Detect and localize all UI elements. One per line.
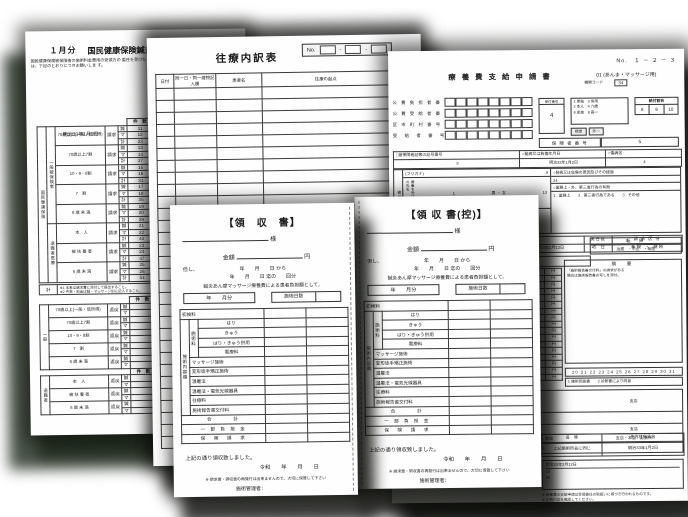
- payer-name-line: 様: [367, 225, 527, 236]
- visit-breakdown-title: 往療内訳表: [147, 49, 347, 67]
- code-row-label: 区 市 町 村 番 号: [393, 121, 445, 127]
- row-label: 被 扶 養 者: [57, 242, 107, 262]
- empty-cell: [156, 112, 174, 124]
- code-cell: [489, 108, 500, 117]
- fee-value: [449, 386, 491, 396]
- fee-value: [490, 319, 532, 329]
- branch-word: 支店: [585, 397, 682, 404]
- table-cell: [174, 88, 216, 101]
- fee-value: [306, 336, 348, 346]
- org-code-label: 機関コード: [584, 80, 603, 85]
- code-cell: [511, 119, 522, 128]
- table-cell: [175, 124, 217, 137]
- ratio-value: 8: [636, 105, 650, 114]
- empty-cell: [157, 184, 175, 196]
- row-label: 70歳以上(一般・低所得): [55, 125, 105, 145]
- code-row-label: 受 給 者 番 号: [393, 132, 445, 138]
- mode-label: 返戻: [109, 388, 122, 401]
- row-label: 6 歳 未 満: [57, 262, 107, 282]
- perforation-line: [359, 201, 363, 485]
- fee-value: [307, 355, 349, 365]
- empty-cell: [157, 148, 175, 160]
- amount-underline: [236, 257, 302, 259]
- fee-value: [448, 329, 490, 339]
- reissue-note: ※ 請求書・領収書の再発行は出来ませんので、大切に保管して下さい: [178, 475, 354, 483]
- mode-label: 返戻: [108, 316, 121, 329]
- record-value: 9: [393, 159, 519, 169]
- table-cell: [175, 148, 217, 161]
- name-underline: [182, 240, 268, 242]
- mode-label: 請求: [106, 223, 119, 243]
- row-label: 6 歳 未 満: [50, 401, 109, 415]
- table-cell: [174, 100, 216, 113]
- code-cell: [489, 119, 500, 128]
- proviso-block: 但し、 年 月 日 から 年 月 日 迄の 回分: [365, 257, 529, 274]
- amount-line: 金額 円: [407, 244, 494, 254]
- empty-cell: [156, 100, 174, 112]
- era-date-line: 令和 年 月 日: [443, 454, 502, 463]
- code-cell: [500, 108, 511, 117]
- month-box: 年 月分: [183, 292, 255, 304]
- fee-value: [307, 365, 349, 375]
- fee-value: [308, 422, 350, 432]
- fee-value: [264, 337, 306, 347]
- code-cell: [500, 119, 511, 128]
- row-label: 6 歳 未 満: [49, 355, 108, 369]
- payer-name-line: 様: [182, 233, 342, 244]
- no-dash: -: [365, 46, 367, 52]
- fee-value: [308, 432, 350, 442]
- fee-value: [449, 425, 491, 435]
- fee-value: [265, 356, 307, 366]
- cause-header-text: ○発病又は負傷の原因及びその経過: [553, 169, 614, 175]
- application-foot-notes: ※ 療養費の支給申請は受領委任の取扱いに基づき行われるものです。 ※ 記載内容を…: [542, 492, 684, 504]
- kokuho-intro-text: 国民健康保険被保険者の施術料金費用の受領方の 委任を受けたるのは、下記のとおりに…: [31, 57, 155, 69]
- consent-dates-row: 20 21 22 23 24 25 26 27 28 29 30 31: [565, 367, 683, 377]
- code-cell: [511, 130, 522, 139]
- mode-label: 請求: [105, 145, 118, 165]
- relation-value: 13: [543, 190, 548, 195]
- memo-box: 摘 要 「施術報告書交付料」の請求がある 場合は施術報告書の写しを添付。: [564, 259, 683, 364]
- fee-value: [448, 310, 490, 320]
- empty-cell: [157, 160, 175, 172]
- document-stack-background: １月分 国民健康保険鍼灸マッサージ療養費請求総括票 国民健康保険被保険者の施術料…: [0, 0, 688, 517]
- column-header: 日付: [156, 74, 174, 88]
- fee-value: [306, 346, 348, 356]
- payee-value: 明治33年1月2日: [602, 441, 684, 456]
- fee-value: [265, 385, 307, 395]
- receipt-number-value: 4: [540, 105, 564, 119]
- fee-value: [265, 365, 307, 375]
- receipt-sheet: 【領 収 書】 様 金額 円 但し、 年 月 日 から 年 月 日 迄の 回分 …: [170, 203, 358, 498]
- fee-value: [449, 406, 491, 416]
- treatment-days-box: 施術日数: [271, 291, 341, 303]
- fee-value: [264, 318, 306, 328]
- payee-table: 名 称 先方住所氏名 上記施術所名に同じ 明治33年1月2日: [541, 433, 684, 457]
- table-cell: [216, 87, 262, 100]
- code-cell: [521, 97, 532, 106]
- receipt-title: 【領 収 書】: [170, 213, 354, 231]
- code-cell: [445, 120, 456, 129]
- row-label: 被 扶 養 者: [50, 388, 109, 402]
- yen-label: 円: [304, 254, 310, 260]
- code-cell: [500, 130, 511, 139]
- insurer-number-label: 保 険 者 番 号: [539, 137, 601, 148]
- manager-signature-label: 施術管理者：: [236, 485, 266, 492]
- row-label: 6 歳 未 満: [56, 203, 106, 223]
- fee-value: [490, 328, 532, 338]
- outcome-box: 転 帰 治癒 ・中止 ・転医: [590, 237, 682, 255]
- fee-value: [449, 358, 491, 368]
- code-cell: [456, 131, 467, 140]
- fee-value: [449, 367, 491, 377]
- form-use-label: (あんま・マッサージ用): [603, 72, 656, 78]
- fee-value: [265, 413, 307, 423]
- legend-line: 6 家族 8 高一: [574, 110, 626, 116]
- code-cell: [467, 131, 478, 140]
- mode-label: 請求: [106, 203, 119, 223]
- row-label: 10・9・8割: [56, 164, 106, 184]
- fee-value: [306, 327, 348, 337]
- code-cell: [478, 119, 489, 128]
- fee-value: [307, 403, 349, 413]
- fee-value: [266, 423, 308, 433]
- manager-signature-label: 施術管理者：: [419, 477, 449, 484]
- fee-value: [491, 386, 533, 396]
- treatment-fee-group-label: 施術料: [373, 311, 382, 349]
- table-cell: [216, 111, 262, 124]
- code-cell: [467, 109, 478, 118]
- mode-label: 返戻: [108, 375, 121, 388]
- fee-value: [307, 394, 349, 404]
- row-label: 本 人: [49, 375, 108, 389]
- era-date-line: 令和 年 月 日: [260, 462, 319, 471]
- ratio-value: 9: [650, 105, 664, 114]
- total-row-label: 保 険 請 求: [182, 433, 266, 444]
- work-options: 1 . 業務上 2 . 第三者行為である 3 . その他: [551, 191, 680, 199]
- fee-value: [306, 307, 348, 317]
- code-cell: [478, 108, 489, 117]
- table-cell: [217, 135, 263, 148]
- treatment-days-label: 施術日数: [456, 284, 500, 293]
- fee-value: [448, 338, 490, 348]
- receipt-copy-title: 【領 収 書(控)】: [355, 205, 539, 222]
- fee-value: [265, 394, 307, 404]
- receipt-copy-fee-table: 初検料施術内容欄施術料はりきゅうはり・きゅう併用電療料マッサージ施術変形徒手矯正…: [364, 299, 534, 436]
- total-row-label: 保 険 請 求: [365, 425, 449, 435]
- code-cell: [522, 119, 533, 128]
- code-cell: [467, 120, 478, 129]
- code-cell: [445, 131, 456, 140]
- code-cell: [455, 98, 466, 107]
- name-suffix: 様: [270, 237, 276, 243]
- ratio-value: 10: [664, 105, 677, 114]
- fee-value: [265, 404, 307, 414]
- branch-word: 支店: [585, 425, 682, 432]
- fee-value: [307, 374, 349, 384]
- branch-word: [585, 417, 682, 418]
- table-cell: [217, 147, 263, 160]
- fee-value: [265, 375, 307, 385]
- code-cell: [444, 98, 455, 107]
- column-header: 同一日・同一建物記入欄: [174, 74, 216, 89]
- yen-label: 円: [488, 247, 494, 253]
- table-cell: [217, 159, 263, 172]
- empty-cell: [157, 124, 175, 136]
- code-cell: [510, 97, 521, 106]
- receipt-description: 鍼灸あん摩マッサージ療養費による患者負担額として。: [171, 281, 355, 291]
- public-expense-code-rows: 公 費 負 担 者 番 号公 費 受 給 者 番 号区 市 町 村 番 号受 給…: [392, 96, 532, 141]
- benefit-ratio-box: 給付割合 8 9 10: [634, 97, 678, 115]
- mode-label: 返戻: [107, 303, 120, 316]
- table-cell: [217, 171, 263, 184]
- fee-value: [491, 367, 533, 377]
- fee-value: [307, 413, 349, 423]
- fee-value: [448, 319, 490, 329]
- mode-label: 返戻: [108, 329, 121, 342]
- receipt-copy-sheet: 【領 収 書(控)】 様 金額 円 但し、 年 月 日 から 年 月 日 迄の …: [354, 195, 541, 489]
- fee-value: [449, 415, 491, 425]
- kind-label: マ: [122, 407, 131, 414]
- name-underline: [367, 232, 453, 234]
- fee-value: [491, 357, 533, 367]
- mode-label: 請求: [105, 125, 118, 145]
- code-cell: [477, 97, 488, 106]
- record-value: 4: [605, 157, 681, 167]
- table-cell: [175, 184, 217, 197]
- form-code: 01: [596, 72, 602, 78]
- row-label: 70歳以上(一般・低所得): [49, 303, 108, 317]
- memo-line: 場合は施術報告書の写しを添付。: [565, 273, 681, 279]
- code-cell: [489, 130, 500, 139]
- category-legend-box: 1 単独 3 併用 2 本人 4 六歳 6 家族 8 高一: [570, 97, 628, 125]
- code-row-label: 公 費 負 担 者 番 号: [392, 99, 444, 105]
- code-cell: [488, 97, 499, 106]
- received-statement: 上記の通り領収致しました。: [369, 445, 439, 454]
- table-cell: [217, 123, 263, 136]
- org-code-value: 34: [614, 79, 627, 86]
- intro-line: す。: [97, 63, 105, 68]
- fee-value: [491, 424, 533, 434]
- fee-value: [266, 433, 308, 443]
- fee-value: [491, 415, 533, 425]
- code-cell: [522, 130, 533, 139]
- code-cell: [456, 109, 467, 118]
- table-cell: [175, 172, 217, 185]
- insurer-number-row: 保 険 者 番 号 5: [539, 137, 679, 148]
- fee-value: [491, 405, 533, 415]
- table-cell: [216, 99, 262, 112]
- empty-cell: [156, 88, 174, 100]
- insurer-number-value: 5: [601, 137, 679, 148]
- furigana-label: (フリガナ): [405, 170, 424, 176]
- amount-line: 金額 円: [223, 251, 310, 261]
- mode-label: 返戻: [108, 342, 121, 355]
- treatment-days-box: 施術日数: [455, 283, 525, 295]
- payee-value: 上記施術所名に同じ: [542, 442, 602, 457]
- application-bottom-box: 明治33年2月12日 23 26: [542, 459, 684, 490]
- proviso-label: 但し、: [367, 259, 382, 267]
- row-label: 7 割: [56, 184, 106, 204]
- fee-value: [490, 338, 532, 348]
- fee-value: [449, 348, 491, 358]
- code-row: 受 給 者 番 号: [393, 129, 533, 141]
- treatment-days-label: 施術日数: [272, 292, 316, 302]
- proviso-block: 但し、 年 月 日 から 年 月 日 迄の 回分: [181, 265, 345, 282]
- fee-value: [491, 348, 533, 358]
- row-label: 10・9・8割: [49, 329, 108, 343]
- fee-value: [264, 308, 306, 318]
- row-label: 7 割: [49, 342, 108, 356]
- fee-value: [306, 317, 348, 327]
- no-cell: [371, 44, 387, 53]
- category-small-cells: 視覚 外一: [571, 127, 606, 135]
- code-cell: [456, 120, 467, 129]
- kind-label: 計: [120, 275, 129, 282]
- row-label: 70歳以上7割: [55, 145, 105, 165]
- foot-note: ※ 記載内容を確認してください。: [542, 497, 684, 503]
- table-cell: [175, 160, 217, 173]
- received-statement: 上記の通り領収致しました。: [185, 453, 255, 462]
- insured-right-column: ○発病又は負傷の原因及びその経過 24 ○業務上・外、第三者行為の有無 1 . …: [551, 168, 681, 233]
- note-band-cell: 計: [40, 285, 58, 294]
- proviso-label: 但し、: [183, 267, 198, 275]
- application-title: 療 養 費 支 給 申 請 書: [448, 71, 552, 83]
- yen-label: 円: [546, 374, 563, 381]
- reissue-note: ※ 請求書・領収書の再発行は出来ませんので、大切に保管して下さい: [361, 467, 537, 475]
- code-cell: [511, 108, 522, 117]
- code-cell: [499, 97, 510, 106]
- code-cell: [478, 130, 489, 139]
- bottom-line: 26: [546, 474, 680, 481]
- mode-label: 請求: [107, 242, 120, 262]
- mode-label: 請求: [106, 164, 119, 184]
- receipt-description: 鍼灸あん摩マッサージ療養費による患者負担額として。: [355, 273, 539, 282]
- mode-label: 請求: [106, 184, 119, 204]
- perforation-line: [349, 207, 354, 491]
- empty-cell: [157, 172, 175, 184]
- fee-value: [448, 300, 490, 310]
- mode-label: 返戻: [109, 401, 122, 414]
- code-cell: [445, 109, 456, 118]
- receipt-fee-table: 初検料施術内容欄施術料はりきゅうはり・きゅう併用電療料マッサージ施術変形徒手矯正…: [179, 307, 350, 445]
- table-cell: [174, 112, 216, 125]
- fee-value: [264, 346, 306, 356]
- fee-value: [449, 377, 491, 387]
- fee-value: [491, 376, 533, 386]
- amount-underline: [421, 250, 487, 252]
- column-header: 患者名: [216, 73, 262, 88]
- mode-label: 請求: [107, 262, 120, 282]
- row-label: 本 人: [56, 223, 106, 243]
- fee-value: [449, 396, 491, 406]
- empty-cell: [157, 136, 175, 148]
- consent-type-row: 1 施術同意書 2 診断書により同意: [565, 377, 683, 387]
- fee-value: [490, 309, 532, 319]
- fee-value: [491, 396, 533, 406]
- fee-value: [307, 384, 349, 394]
- furigana-value: 9: [546, 169, 548, 175]
- outcome-options: 治癒 ・中止 ・転医: [591, 245, 681, 254]
- row-label: 70歳以上7割: [49, 316, 108, 330]
- record-value: 明治33年1月2日: [519, 158, 605, 168]
- name-suffix: 様: [454, 229, 460, 235]
- small-cell: 外一: [588, 127, 604, 135]
- small-cell: 視覚: [571, 128, 587, 136]
- benefit-ratio-values: 8 9 10: [636, 105, 678, 114]
- application-title-code: 01 (あんま・マッサージ用): [596, 71, 656, 79]
- fee-value: [490, 300, 532, 310]
- code-cell: [522, 108, 533, 117]
- fee-value: [264, 327, 306, 337]
- code-row-label: 公 費 受 給 者 番 号: [393, 110, 445, 116]
- kokuho-month-label: １月分: [49, 45, 76, 56]
- amount-label: 金額: [407, 247, 419, 253]
- application-page-number: No. １ － ２ － ３: [616, 56, 676, 65]
- mode-label: 返戻: [108, 355, 121, 368]
- code-cell: [466, 98, 477, 107]
- month-box: 年 月分: [367, 284, 439, 296]
- no-cell: [345, 45, 361, 54]
- receipt-number-box: 受付番号 4: [538, 98, 564, 134]
- table-cell: [217, 183, 263, 196]
- table-cell: [175, 136, 217, 149]
- amount-label: 金額: [223, 255, 235, 261]
